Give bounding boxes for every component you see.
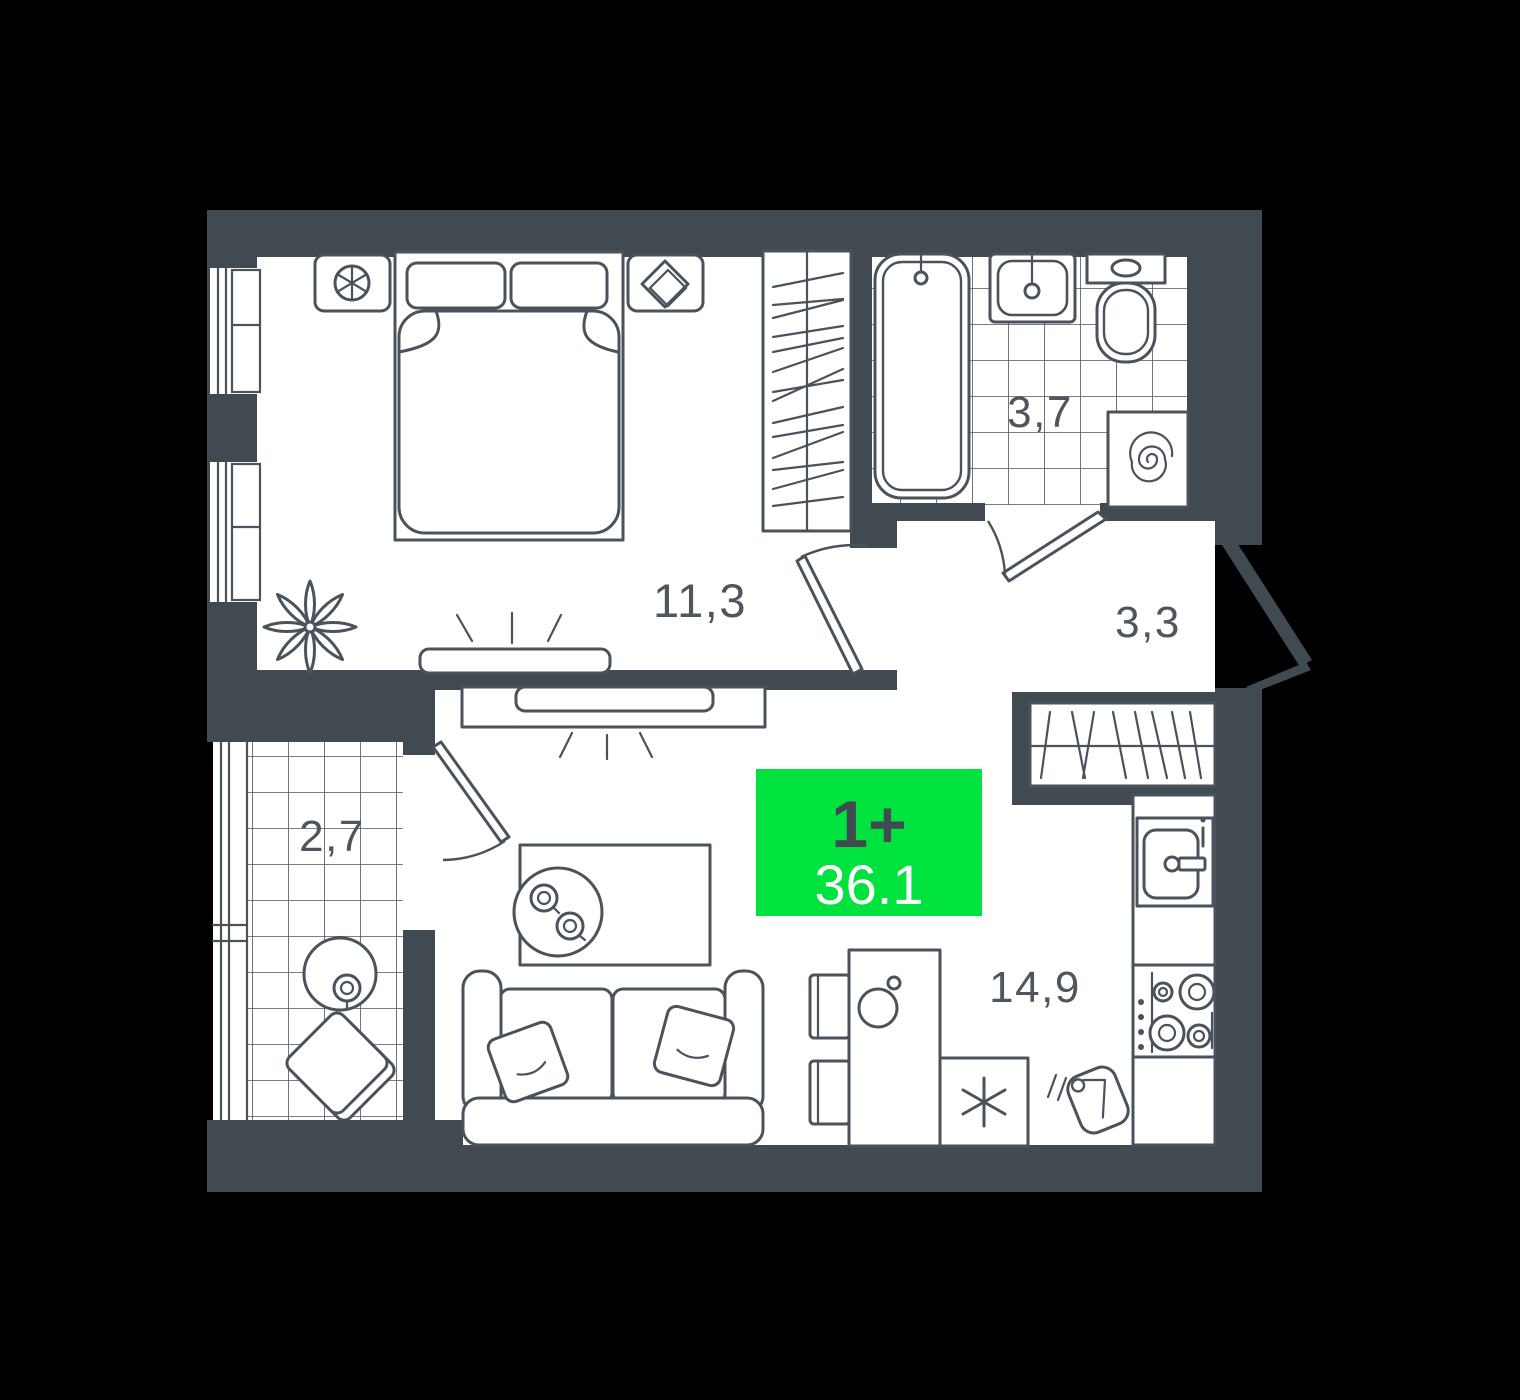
plant-icon (264, 581, 356, 673)
stove-icon (1133, 965, 1215, 1057)
bedroom-area-label: 11,3 (653, 574, 747, 627)
nightstand-left-icon (315, 255, 390, 311)
bathtub-icon (875, 254, 969, 498)
bathroom-area-label: 3,7 (1007, 388, 1073, 437)
coffee-table-icon (514, 845, 710, 965)
kitchen-living-area-label: 14,9 (989, 963, 1081, 1012)
balcony-table-icon (304, 938, 376, 1010)
hallway-area-label: 3,3 (1115, 598, 1181, 647)
fridge-icon (940, 1058, 1028, 1146)
badge-type-label: 1+ (831, 787, 906, 861)
washing-machine-icon (1108, 412, 1188, 507)
sofa-icon (463, 971, 763, 1145)
kitchen-sink-icon (1137, 818, 1213, 907)
badge-area-label: 36.1 (815, 853, 924, 916)
apartment-badge: 1+ 36.1 (756, 769, 982, 916)
toilet-icon (1087, 254, 1165, 362)
floor-plan-canvas: 11,3 3,7 (0, 0, 1520, 1400)
nightstand-right-icon (628, 255, 703, 311)
bed-icon (395, 252, 623, 540)
washbasin-icon (990, 254, 1075, 322)
hall-closet-icon (1030, 703, 1215, 786)
balcony-area-label: 2,7 (299, 812, 365, 861)
wardrobe-icon (763, 251, 851, 531)
floor-plan: 11,3 3,7 (0, 0, 1520, 1400)
